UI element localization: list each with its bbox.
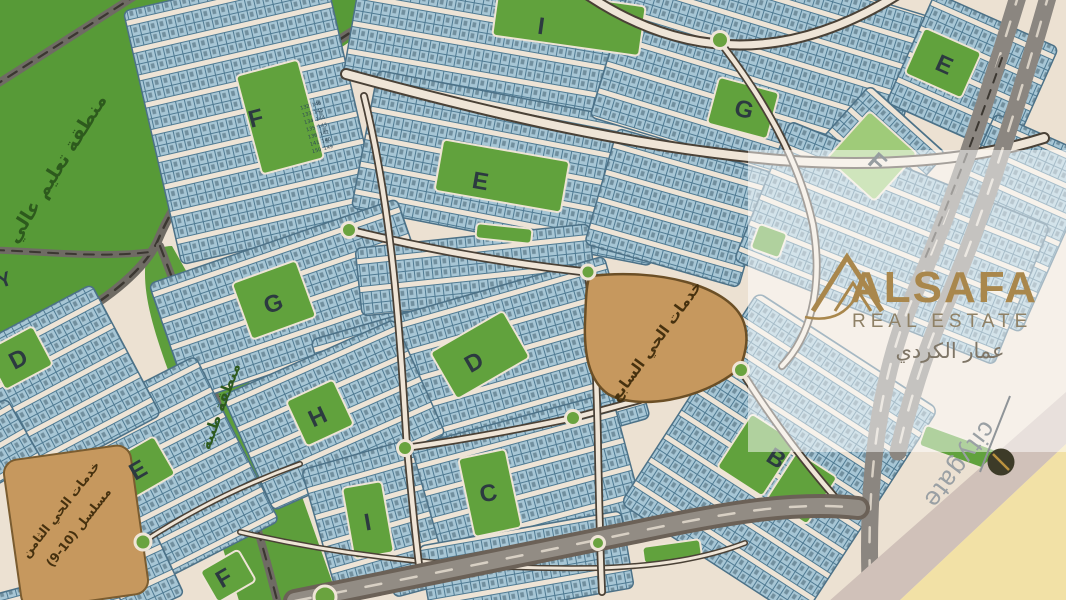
watermark-agent-name: عمار الكردي [895,339,1004,363]
roundabout [592,537,605,550]
roundabout [566,411,581,426]
roundabout [712,32,729,49]
roundabout [581,265,595,279]
roundabout [342,223,357,238]
roundabout [314,586,336,600]
master-plan-photo: 132 146 133 145 134 144 135 143 136 142 … [0,0,1066,600]
roundabout [734,363,749,378]
watermark-tagline-text: REAL ESTATE [852,311,1032,332]
map-svg: 132 146 133 145 134 144 135 143 136 142 … [0,0,1066,600]
roundabout [135,534,151,550]
watermark-brand-text: ALSAFA [850,263,1038,312]
roundabout [398,441,413,456]
